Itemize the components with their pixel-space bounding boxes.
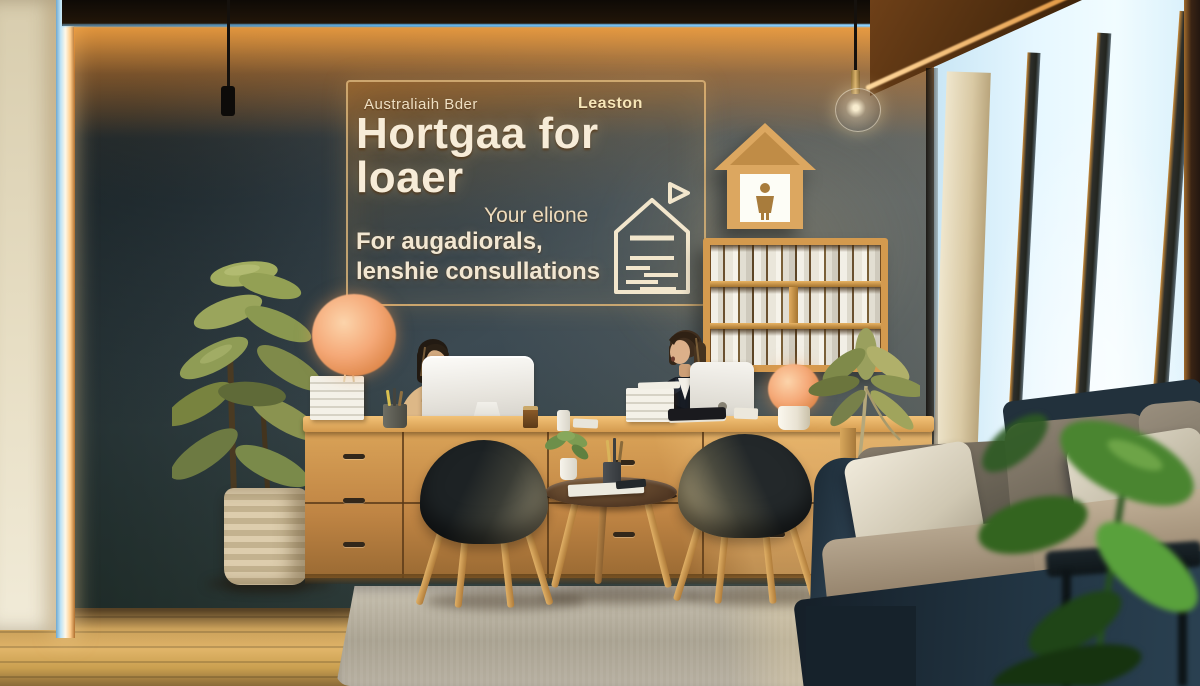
glass-globe-pendant-light-icon: [835, 88, 881, 132]
pendant-cord: [854, 0, 857, 72]
pencil: [613, 438, 616, 464]
sign-tagline: Your elione: [484, 204, 588, 228]
ceiling-blue-light-edge: [62, 24, 874, 27]
book-stack: [310, 376, 364, 420]
cord-fixture: [221, 86, 235, 116]
paper-sheet: [734, 408, 758, 420]
sign-subheading-line2: lenshie consullations: [356, 258, 600, 286]
vertical-cove-light: [56, 0, 75, 638]
sign-headline-line2: loaer: [356, 156, 464, 200]
woven-plant-basket: [224, 488, 308, 585]
book: [638, 381, 680, 389]
house-frame-person-icon: [712, 120, 818, 232]
peach-flower-arrangement: [312, 294, 396, 376]
ceiling-soffit: [62, 0, 940, 26]
book-stack: [626, 388, 674, 422]
bookshelf-row: [711, 287, 880, 323]
drawer-handle: [613, 532, 635, 537]
drawer-handle: [343, 498, 365, 503]
sign-headline-line1: Hortgaa for: [356, 112, 599, 156]
wall-signboard: Australiaih Bder Leaston Hortgaa for loa…: [346, 80, 706, 306]
white-vase: [778, 406, 810, 430]
bookshelf-row: [711, 245, 880, 281]
tablet: [668, 407, 726, 421]
desk-bottle: [557, 410, 570, 431]
left-wall: [0, 0, 62, 630]
pen-cup: [383, 404, 407, 428]
foreground-blurred-plant: [975, 385, 1200, 686]
office-interior-scene: Australiaih Bder Leaston Hortgaa for loa…: [0, 0, 1200, 686]
hanging-cord: [227, 0, 230, 88]
shelf-divider: [789, 287, 798, 323]
chair-shadow: [425, 592, 585, 610]
sofa-base-left: [806, 606, 916, 686]
drawer-handle: [343, 542, 365, 547]
candle: [523, 406, 538, 428]
pen: [393, 388, 396, 406]
paper-sheet: [573, 418, 598, 428]
table-plant-pot: [560, 458, 577, 480]
drawer-handle: [343, 454, 365, 459]
house-document-flag-icon: [600, 176, 702, 300]
drawer-seam: [402, 432, 404, 578]
sign-subheading-line1: For augadiorals,: [356, 228, 543, 256]
